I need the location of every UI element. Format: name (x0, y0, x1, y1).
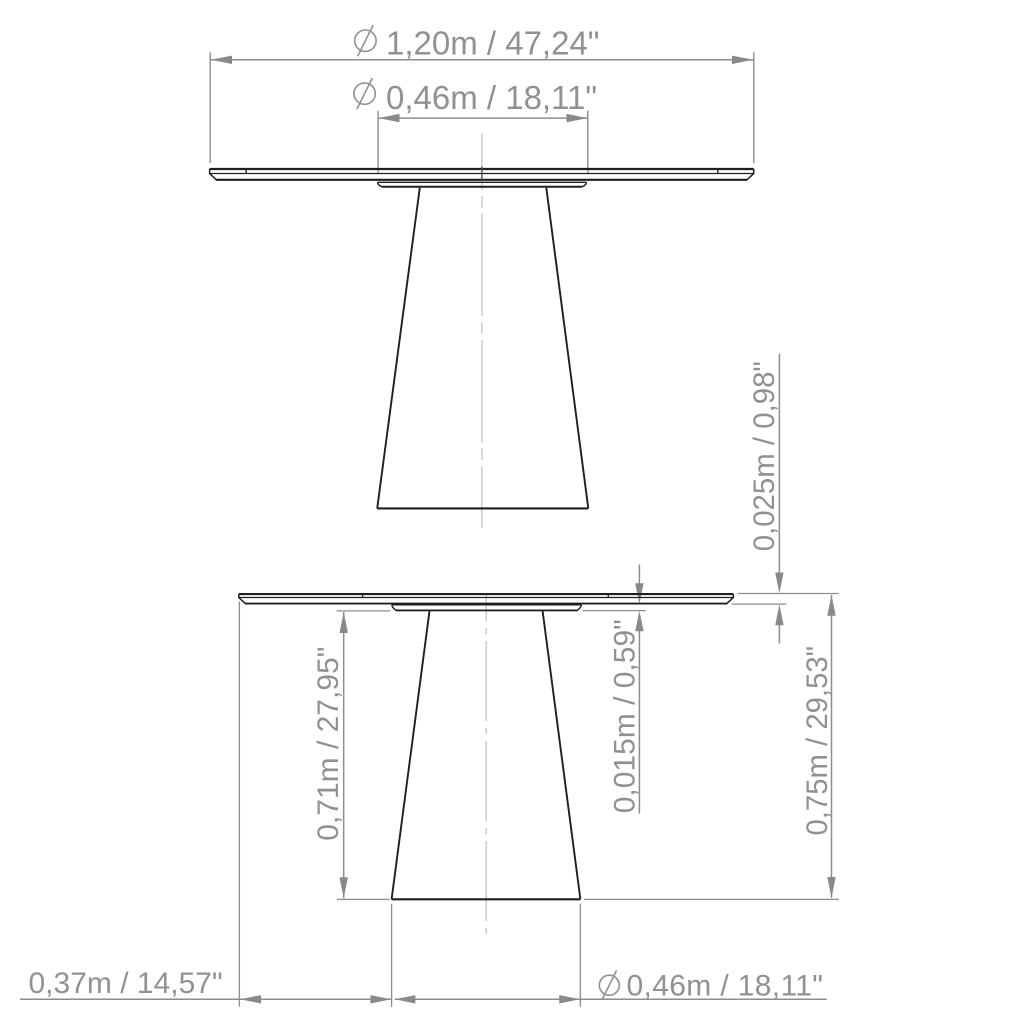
svg-text:0,71m / 27,95": 0,71m / 27,95" (312, 647, 345, 841)
svg-text:0,46m / 18,11": 0,46m / 18,11" (627, 969, 824, 1002)
svg-text:0,37m / 14,57": 0,37m / 14,57" (29, 967, 223, 1000)
svg-text:0,015m / 0,59": 0,015m / 0,59" (609, 619, 642, 813)
svg-text:0,75m / 29,53": 0,75m / 29,53" (801, 646, 834, 836)
svg-text:1,20m / 47,24": 1,20m / 47,24" (386, 25, 600, 62)
svg-text:0,025m / 0,98": 0,025m / 0,98" (748, 361, 781, 551)
svg-text:0,46m / 18,11": 0,46m / 18,11" (386, 79, 597, 116)
